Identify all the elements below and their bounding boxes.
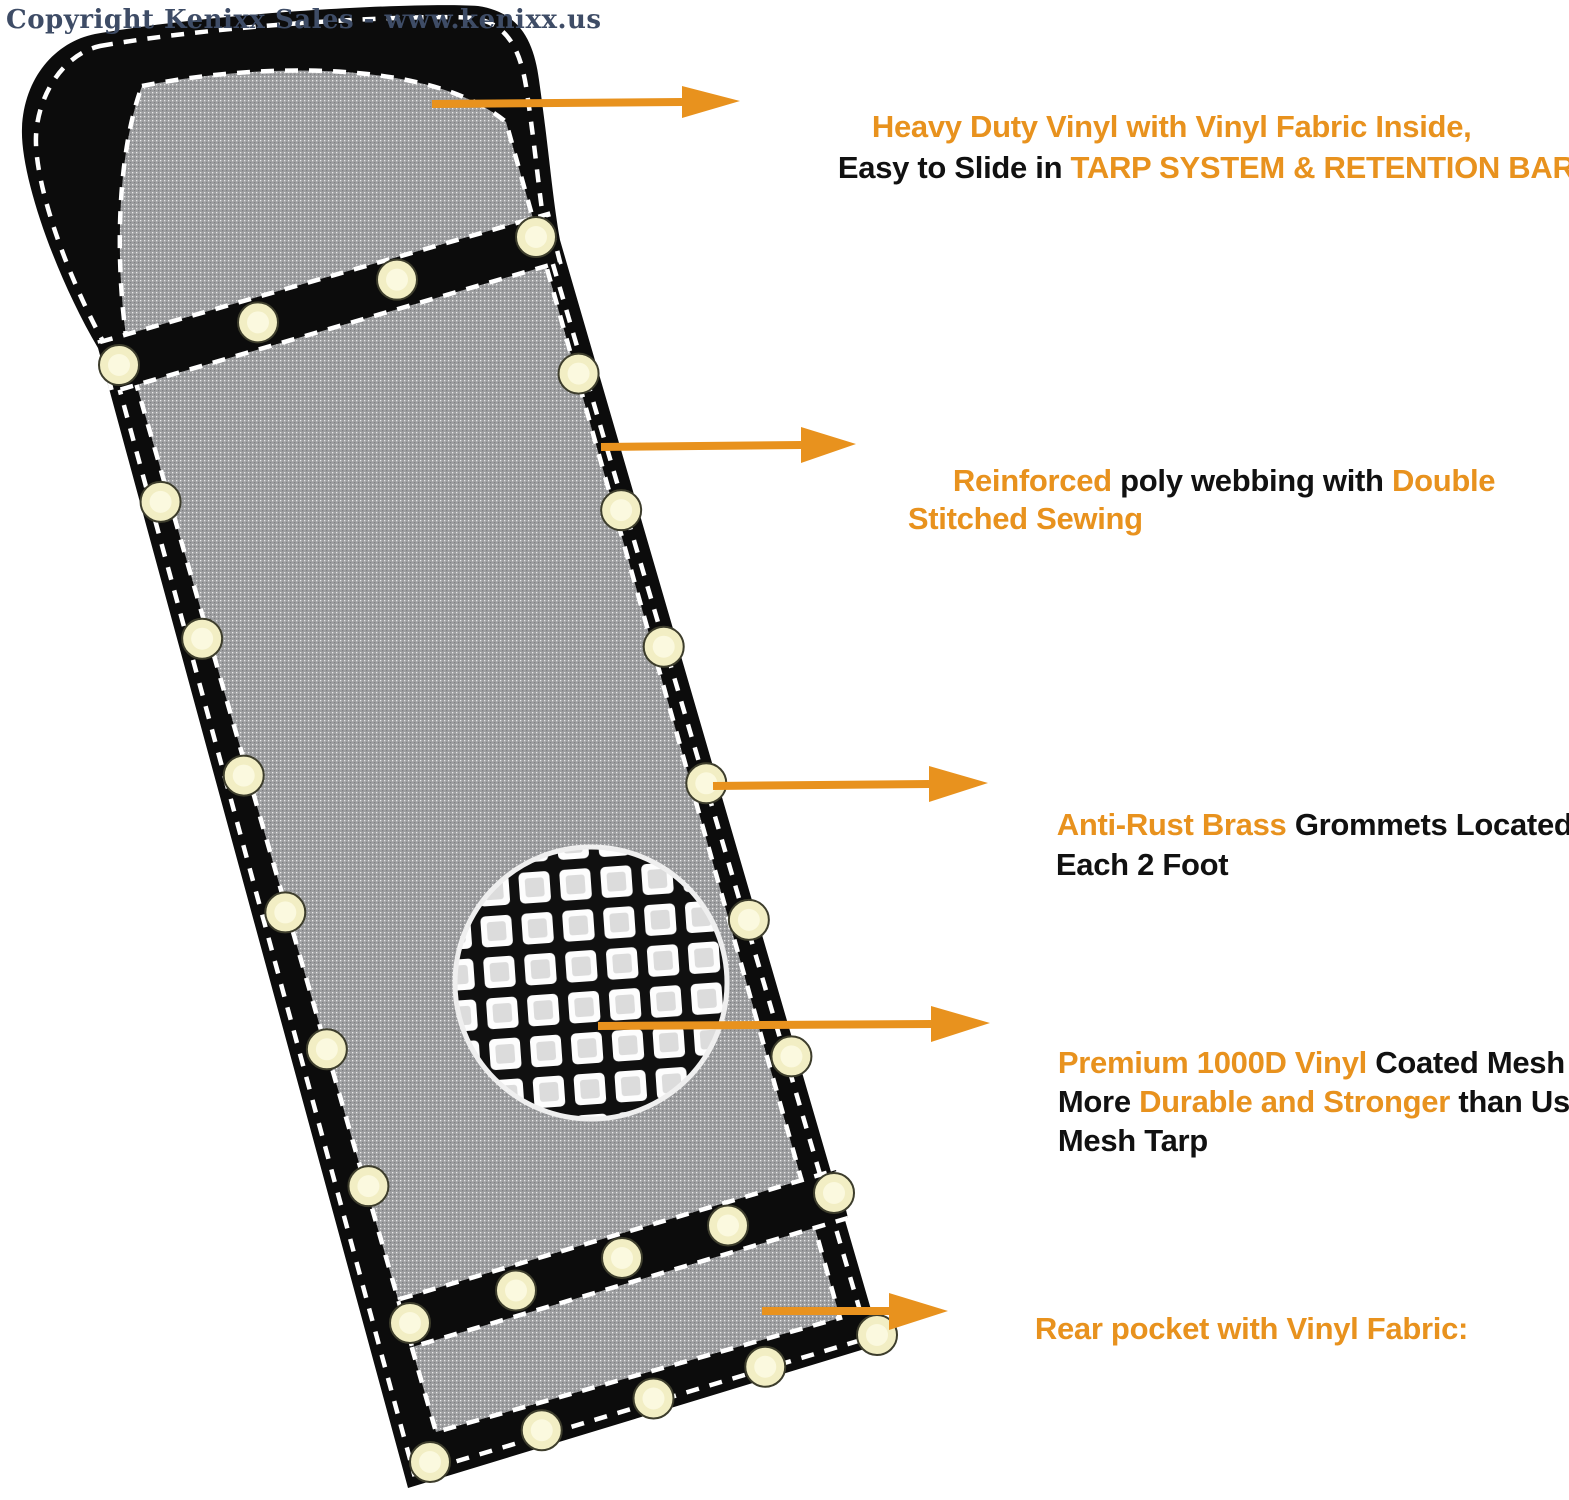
callout-text: Each 2 Foot: [1056, 847, 1228, 882]
callout-text: Mesh Tarp: [1058, 1123, 1208, 1158]
callout-text: Stitched Sewing: [908, 501, 1143, 536]
product-infographic: Copyright Kenixx Sales - www.kenixx.us H…: [0, 0, 1569, 1500]
rear-pocket-callout-line-1: Rear pocket with Vinyl Fabric:: [985, 1272, 1468, 1386]
mesh-callout-line-3: Mesh Tarp: [1008, 1084, 1208, 1198]
callout-text: Grommets Located: [1295, 807, 1569, 842]
callout-text: than Usual: [1458, 1084, 1569, 1119]
pocket-callout-line-2: Easy to Slide in TARP SYSTEM & RETENTION…: [788, 111, 1569, 225]
callout-text: Rear pocket with Vinyl Fabric:: [1035, 1311, 1468, 1346]
callout-text: poly webbing with: [1120, 463, 1392, 498]
copyright-watermark: Copyright Kenixx Sales - www.kenixx.us: [6, 5, 602, 35]
webbing-callout-line-2: Stitched Sewing: [858, 462, 1143, 576]
callout-text: Double: [1392, 463, 1495, 498]
grommet-callout-line-2: Each 2 Foot: [1006, 808, 1228, 922]
callout-text-layer: Heavy Duty Vinyl with Vinyl Fabric Insid…: [0, 0, 1569, 1500]
callout-text: Easy to Slide in: [838, 150, 1071, 185]
callout-text: TARP SYSTEM & RETENTION BAR: [1071, 150, 1569, 185]
